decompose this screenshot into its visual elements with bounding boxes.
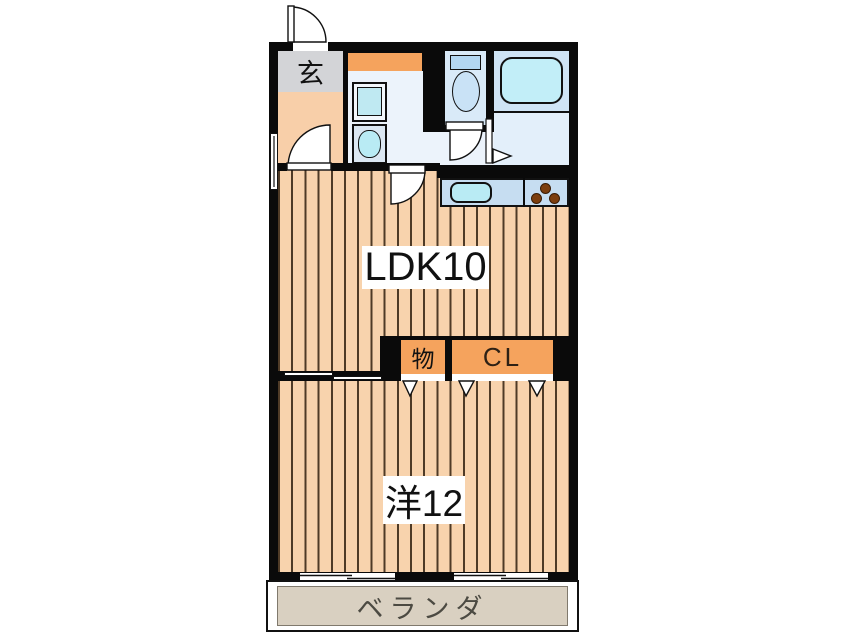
- bedroom-label-box: 洋12: [383, 476, 465, 524]
- ldk-label: LDK10: [364, 245, 486, 290]
- floor-plan: 玄 物 CL: [0, 0, 846, 636]
- closet-door-mark: [403, 381, 417, 396]
- bathroom-door-arrow: [493, 149, 511, 163]
- washroom-door-swing: [391, 170, 425, 204]
- entrance-door-leaf: [288, 6, 294, 42]
- door-symbols: [0, 0, 846, 636]
- closet-door-mark: [459, 381, 474, 396]
- hallway-door-swing: [288, 125, 330, 167]
- ldk-label-box: LDK10: [362, 246, 489, 289]
- entrance-door-swing: [291, 7, 326, 42]
- toilet-door-leaf: [446, 122, 483, 130]
- hallway-door-leaf: [287, 163, 331, 170]
- bedroom-label: 洋12: [385, 473, 463, 527]
- toilet-door-swing: [450, 128, 482, 160]
- washroom-door-leaf: [389, 165, 425, 173]
- bathroom-door-bar: [486, 119, 492, 163]
- closet-door-mark: [529, 381, 545, 396]
